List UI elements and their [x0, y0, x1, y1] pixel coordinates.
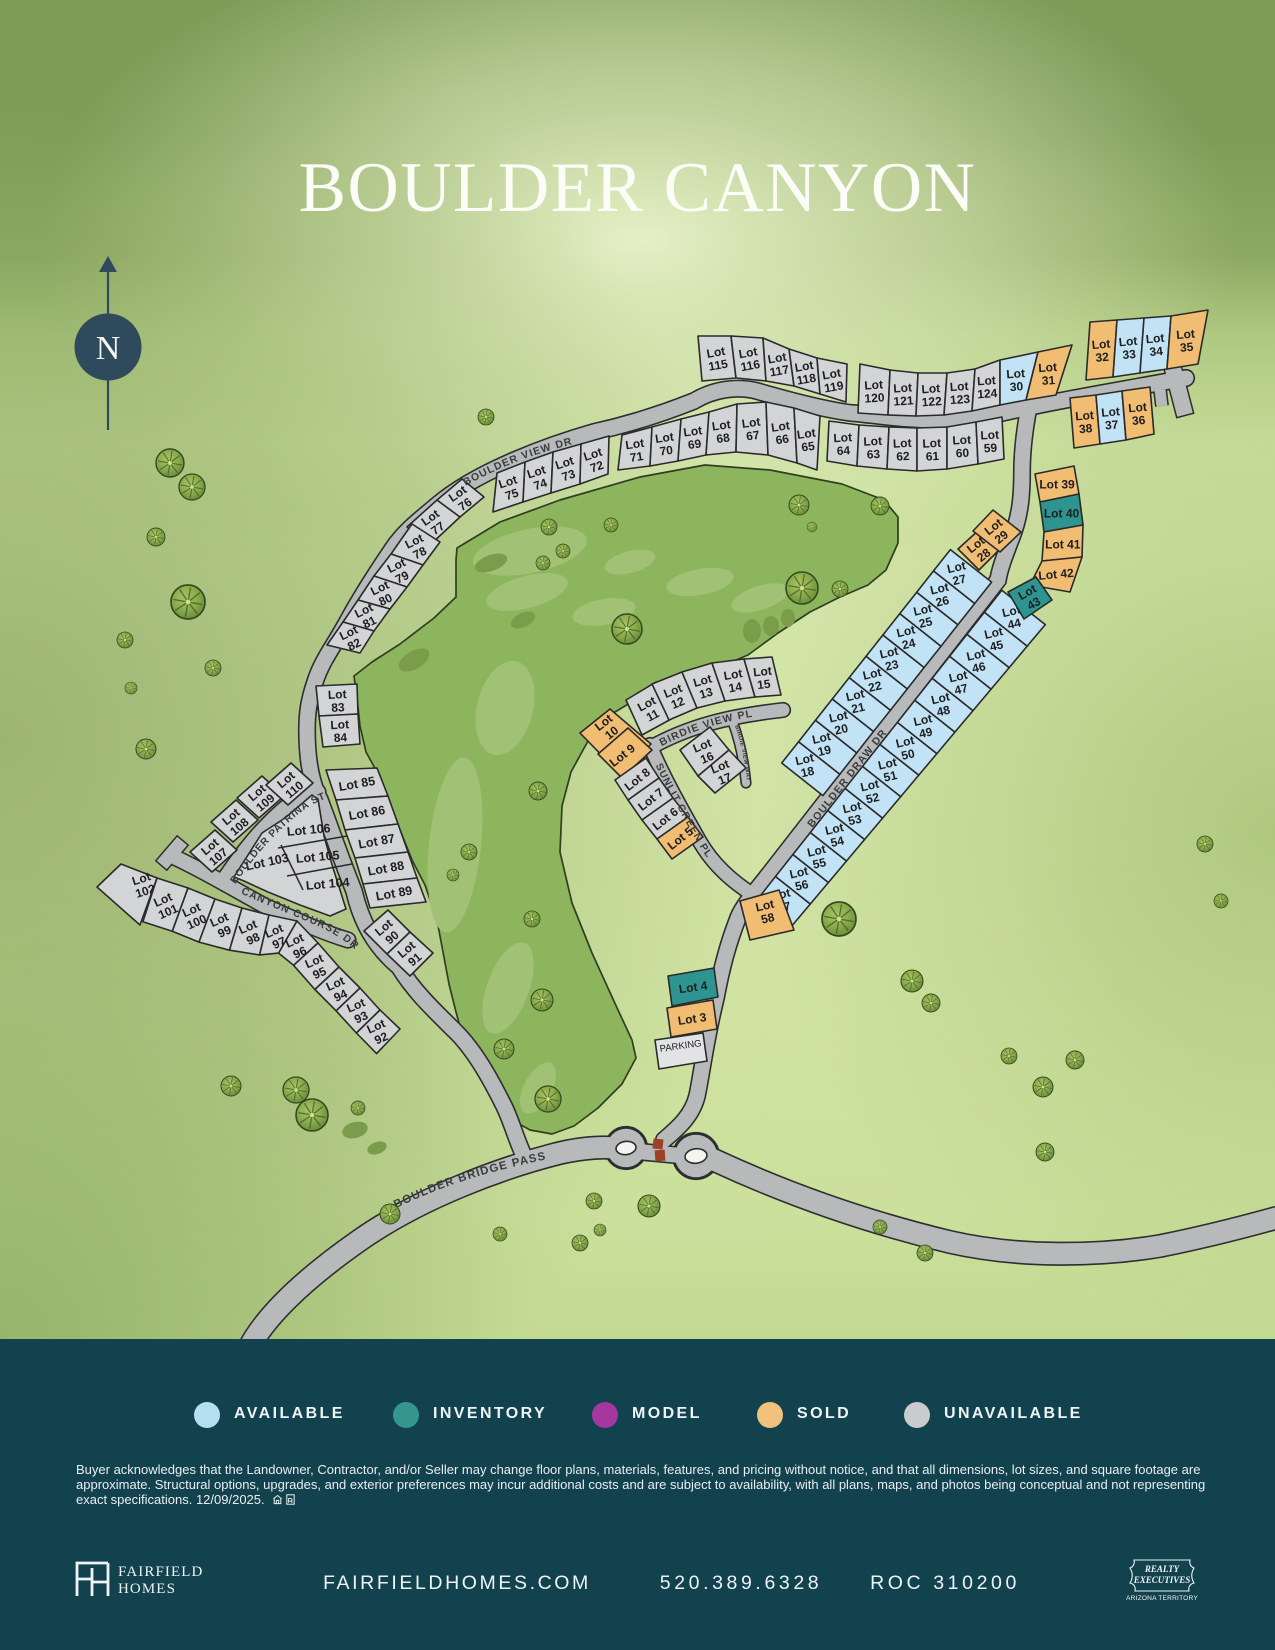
svg-text:Lot64: Lot64 — [833, 430, 853, 458]
svg-text:HOMES: HOMES — [118, 1581, 176, 1597]
svg-text:FAIRFIELD: FAIRFIELD — [118, 1564, 203, 1580]
svg-text:Lot59: Lot59 — [980, 428, 1000, 456]
svg-text:Lot61: Lot61 — [922, 436, 942, 464]
svg-text:Lot63: Lot63 — [863, 434, 883, 462]
svg-text:Lot 41: Lot 41 — [1045, 537, 1081, 551]
svg-text:N: N — [96, 330, 121, 367]
svg-text:EXECUTIVES: EXECUTIVES — [1133, 1575, 1191, 1585]
svg-text:Lot124: Lot124 — [976, 373, 998, 401]
svg-text:REALTY: REALTY — [1144, 1564, 1181, 1574]
svg-text:Lot121: Lot121 — [892, 380, 914, 408]
svg-text:ARIZONA TERRITORY: ARIZONA TERRITORY — [1126, 1595, 1198, 1602]
svg-text:Lot62: Lot62 — [893, 436, 913, 464]
svg-text:Lot120: Lot120 — [863, 377, 885, 405]
svg-text:Lot 40: Lot 40 — [1044, 507, 1080, 521]
svg-text:Lot122: Lot122 — [920, 381, 942, 409]
svg-text:Lot60: Lot60 — [952, 433, 972, 461]
svg-text:Lot83: Lot83 — [328, 687, 348, 715]
svg-text:Lot 39: Lot 39 — [1039, 478, 1075, 492]
svg-text:Lot84: Lot84 — [330, 717, 350, 745]
svg-text:Lot123: Lot123 — [949, 379, 971, 407]
